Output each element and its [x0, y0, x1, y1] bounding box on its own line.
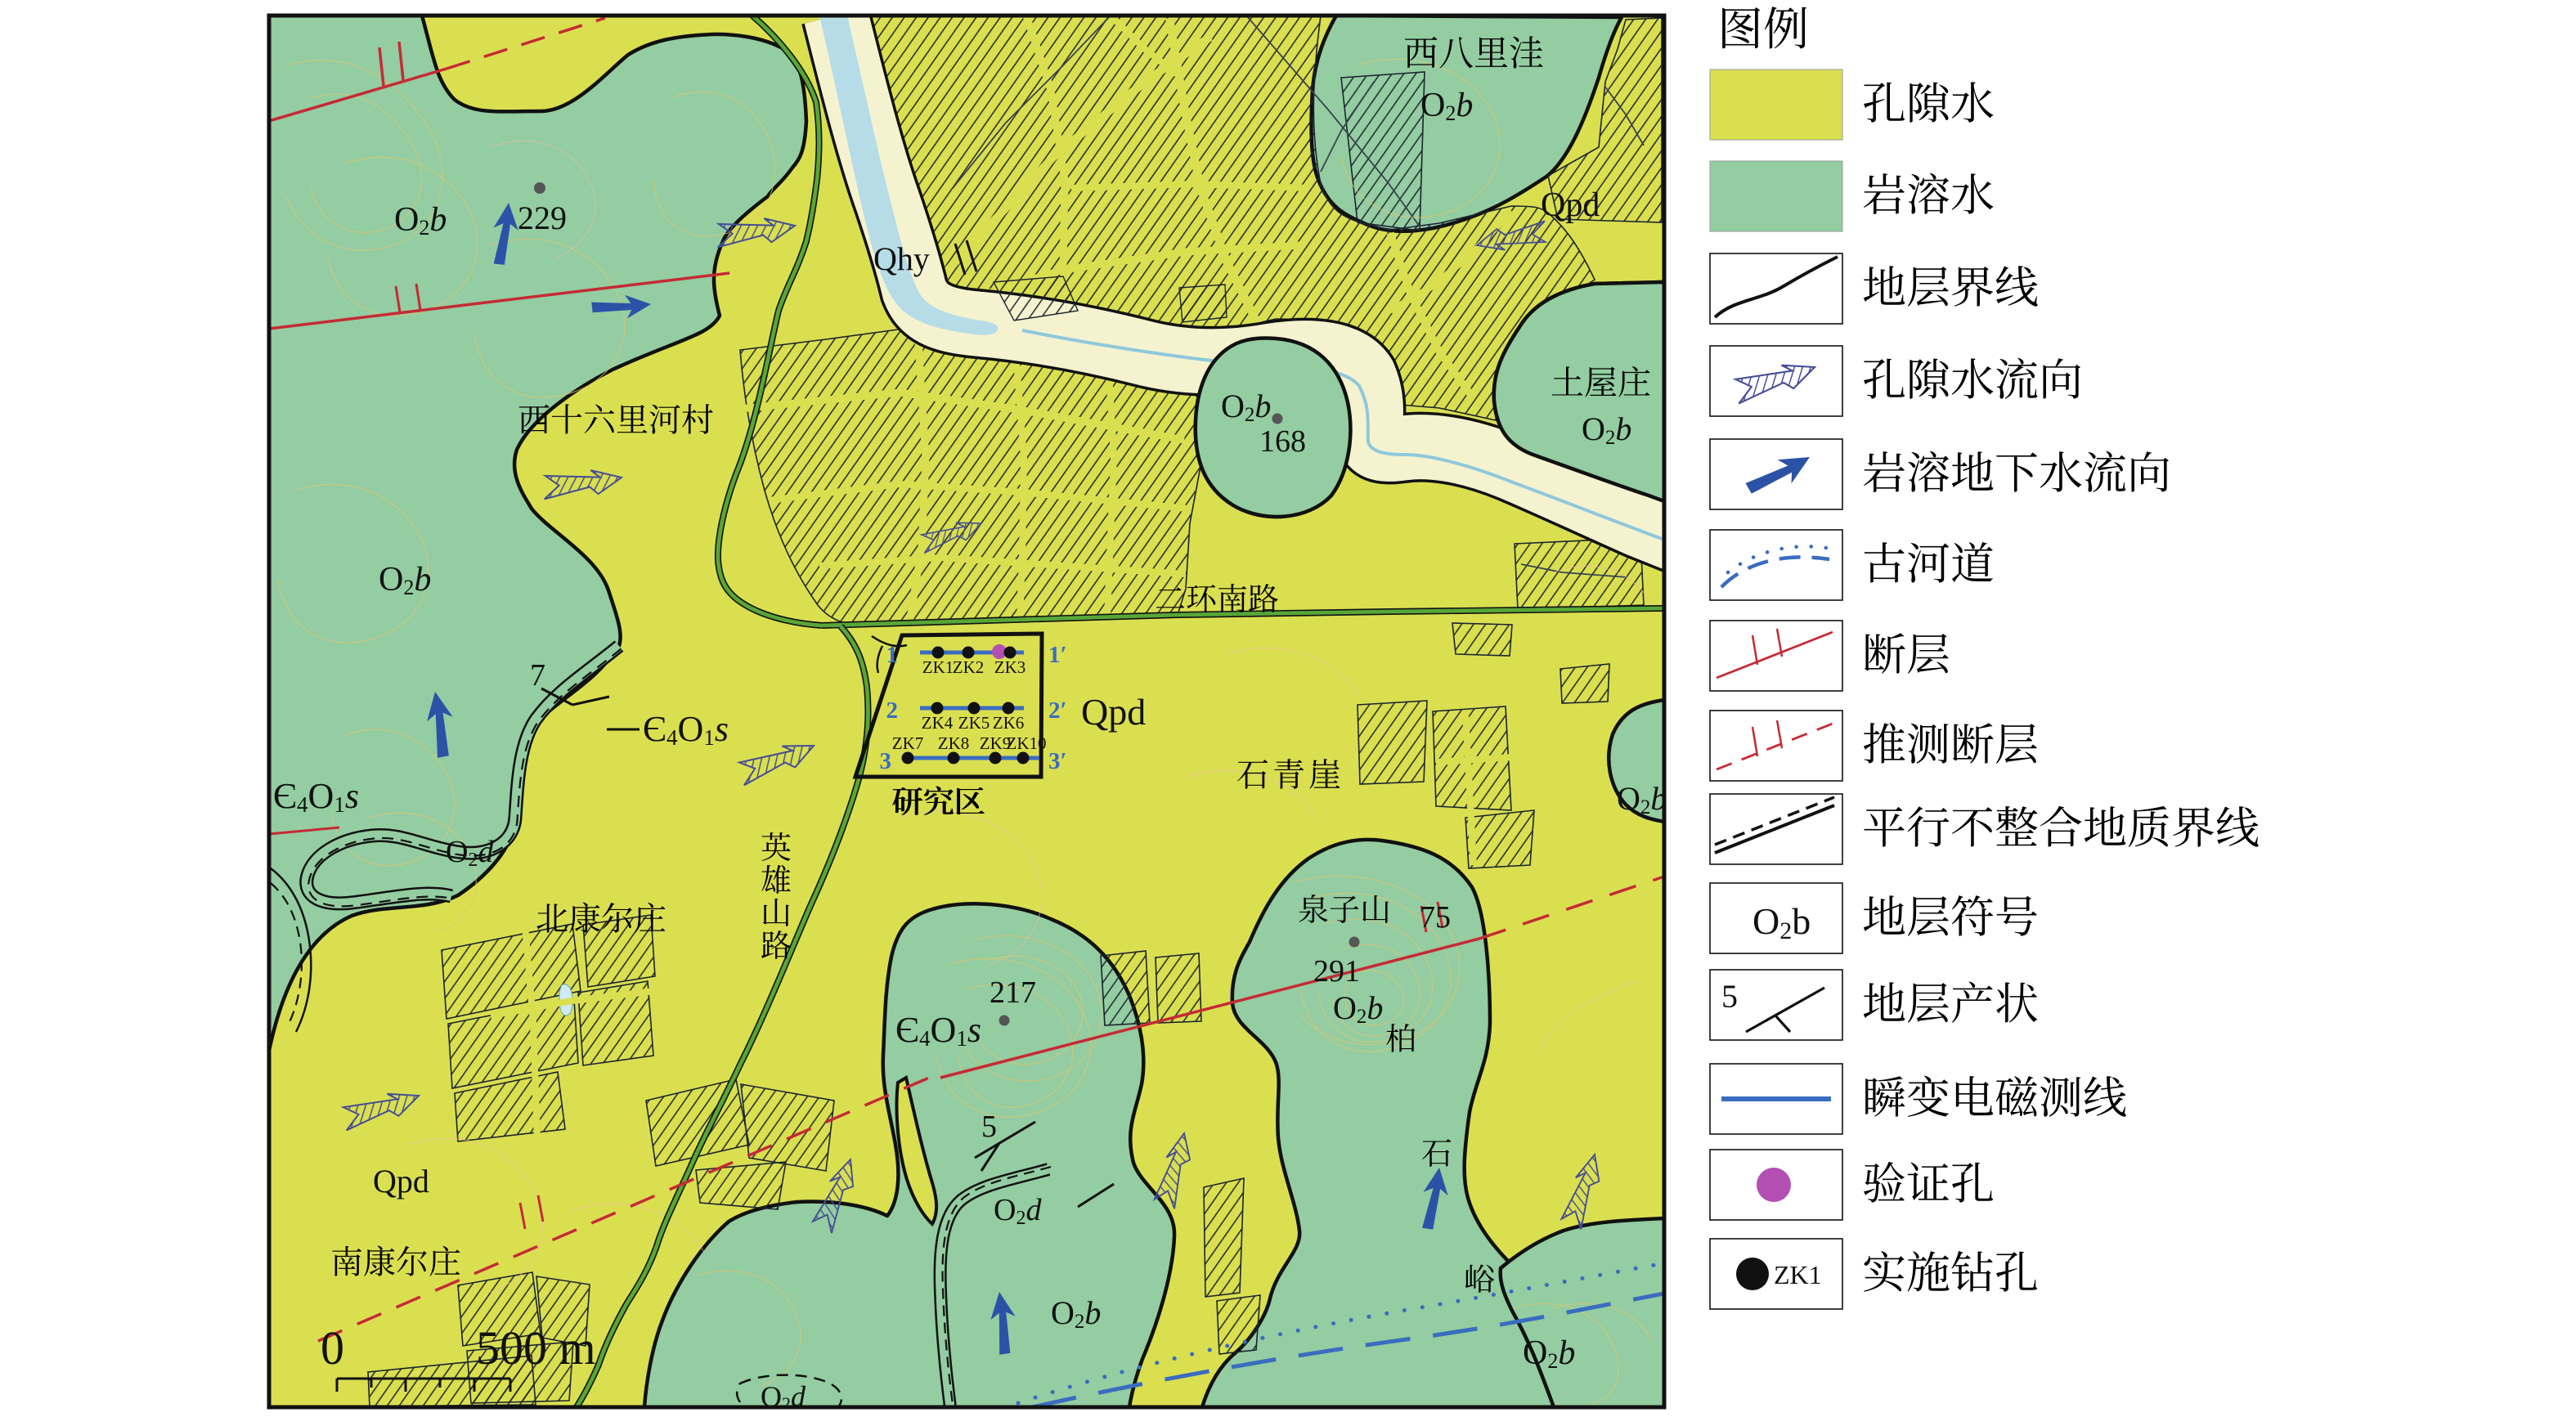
- svg-text:1′: 1′: [1048, 642, 1067, 668]
- svg-text:ZK6: ZK6: [993, 713, 1025, 733]
- svg-text:Qpd: Qpd: [1081, 691, 1146, 733]
- svg-text:229: 229: [518, 200, 567, 236]
- svg-text:1: 1: [886, 642, 899, 668]
- svg-text:Qhy: Qhy: [873, 240, 930, 277]
- svg-text:7: 7: [530, 658, 545, 693]
- svg-text:ZK4: ZK4: [922, 713, 954, 733]
- svg-text:ZK7: ZK7: [892, 733, 924, 753]
- svg-text:Є4O1s: Є4O1s: [643, 709, 729, 750]
- svg-text:75: 75: [1420, 900, 1451, 935]
- svg-text:Qpd: Qpd: [1541, 186, 1600, 224]
- svg-text:500 m: 500 m: [476, 1321, 596, 1374]
- svg-text:5: 5: [1721, 978, 1738, 1015]
- svg-text:ZK8: ZK8: [938, 733, 970, 753]
- svg-text:2′: 2′: [1048, 697, 1067, 724]
- svg-text:Є4O1s: Є4O1s: [273, 776, 359, 817]
- svg-text:ZK1: ZK1: [1774, 1260, 1822, 1289]
- svg-text:ZK1: ZK1: [922, 657, 954, 677]
- svg-text:217: 217: [990, 975, 1036, 1010]
- svg-text:3: 3: [880, 748, 892, 774]
- svg-text:Є4O1s: Є4O1s: [895, 1010, 981, 1051]
- svg-text:Qpd: Qpd: [373, 1163, 429, 1200]
- svg-text:5: 5: [981, 1110, 997, 1144]
- svg-text:2: 2: [886, 697, 899, 724]
- svg-text:ZK10: ZK10: [1007, 733, 1047, 753]
- svg-text:ZK5: ZK5: [958, 713, 990, 733]
- svg-text:291: 291: [1313, 954, 1360, 989]
- svg-text:0: 0: [321, 1321, 344, 1374]
- svg-text:168: 168: [1259, 424, 1306, 459]
- svg-text:ZK3: ZK3: [994, 657, 1026, 677]
- svg-text:ZK2: ZK2: [953, 657, 985, 677]
- svg-text:3′: 3′: [1048, 748, 1067, 774]
